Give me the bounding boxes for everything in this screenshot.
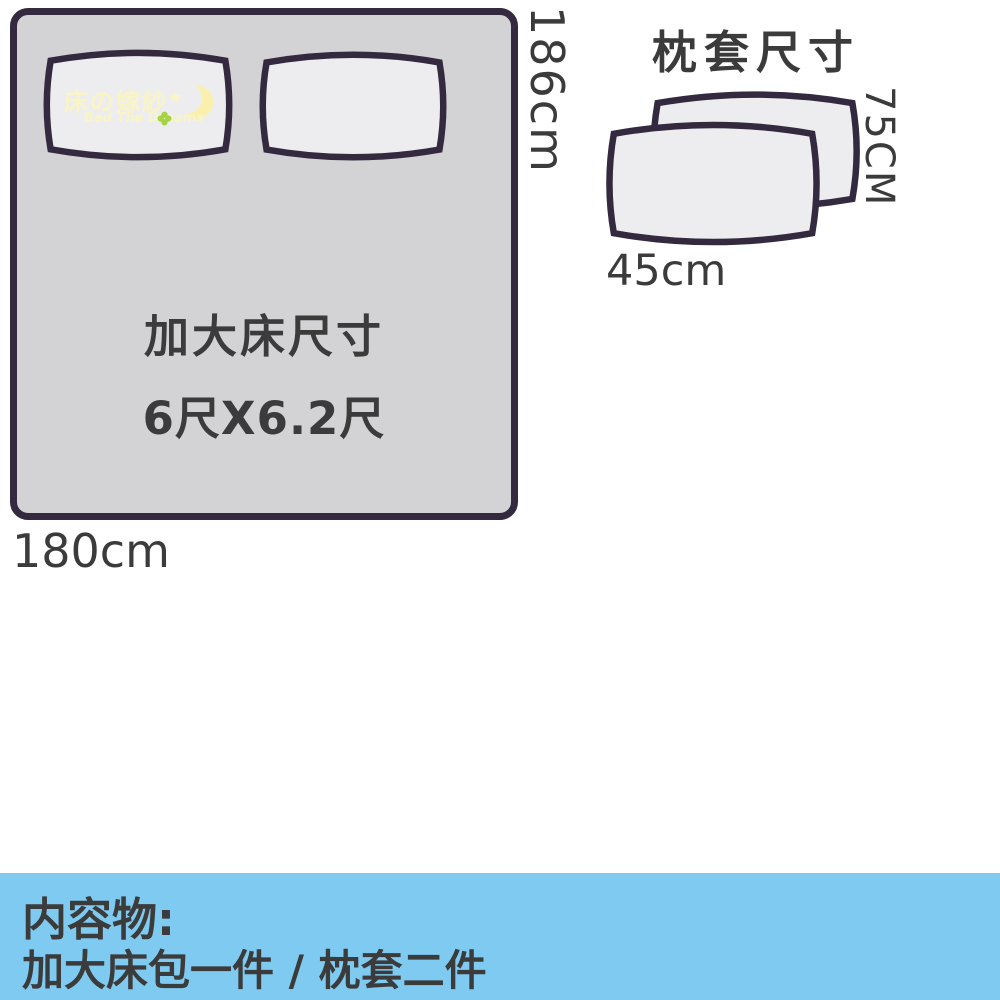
bed-size-caption: 加大床尺寸 6尺X6.2尺: [10, 300, 518, 447]
bed-size-value: 6尺X6.2尺: [10, 382, 518, 447]
brand-watermark: 床の嫁紗 ★ Bed The Dreams: [64, 80, 224, 132]
pillowcase-width-label: 45cm: [606, 246, 726, 296]
bed-size-title: 加大床尺寸: [10, 300, 518, 365]
bed-pillow-right-shape: [258, 46, 448, 166]
contents-footer-bar: 内容物: 加大床包一件 / 枕套二件: [0, 873, 1000, 1000]
pillowcase-front-shape: [604, 115, 822, 252]
bed-height-label: 186cm: [520, 6, 574, 174]
pillowcase-height-label: 75CM: [856, 86, 902, 207]
brand-text-en: Bed The Dreams: [84, 111, 204, 126]
clover-icon: [157, 111, 172, 126]
product-size-diagram: 床の嫁紗 ★ Bed The Dreams 加大床尺寸 6尺X6.2尺: [0, 0, 1000, 1000]
pillowcase-section-title: 枕套尺寸: [652, 16, 860, 81]
contents-items: 加大床包一件 / 枕套二件: [22, 937, 487, 998]
bed-width-label: 180cm: [12, 524, 170, 578]
